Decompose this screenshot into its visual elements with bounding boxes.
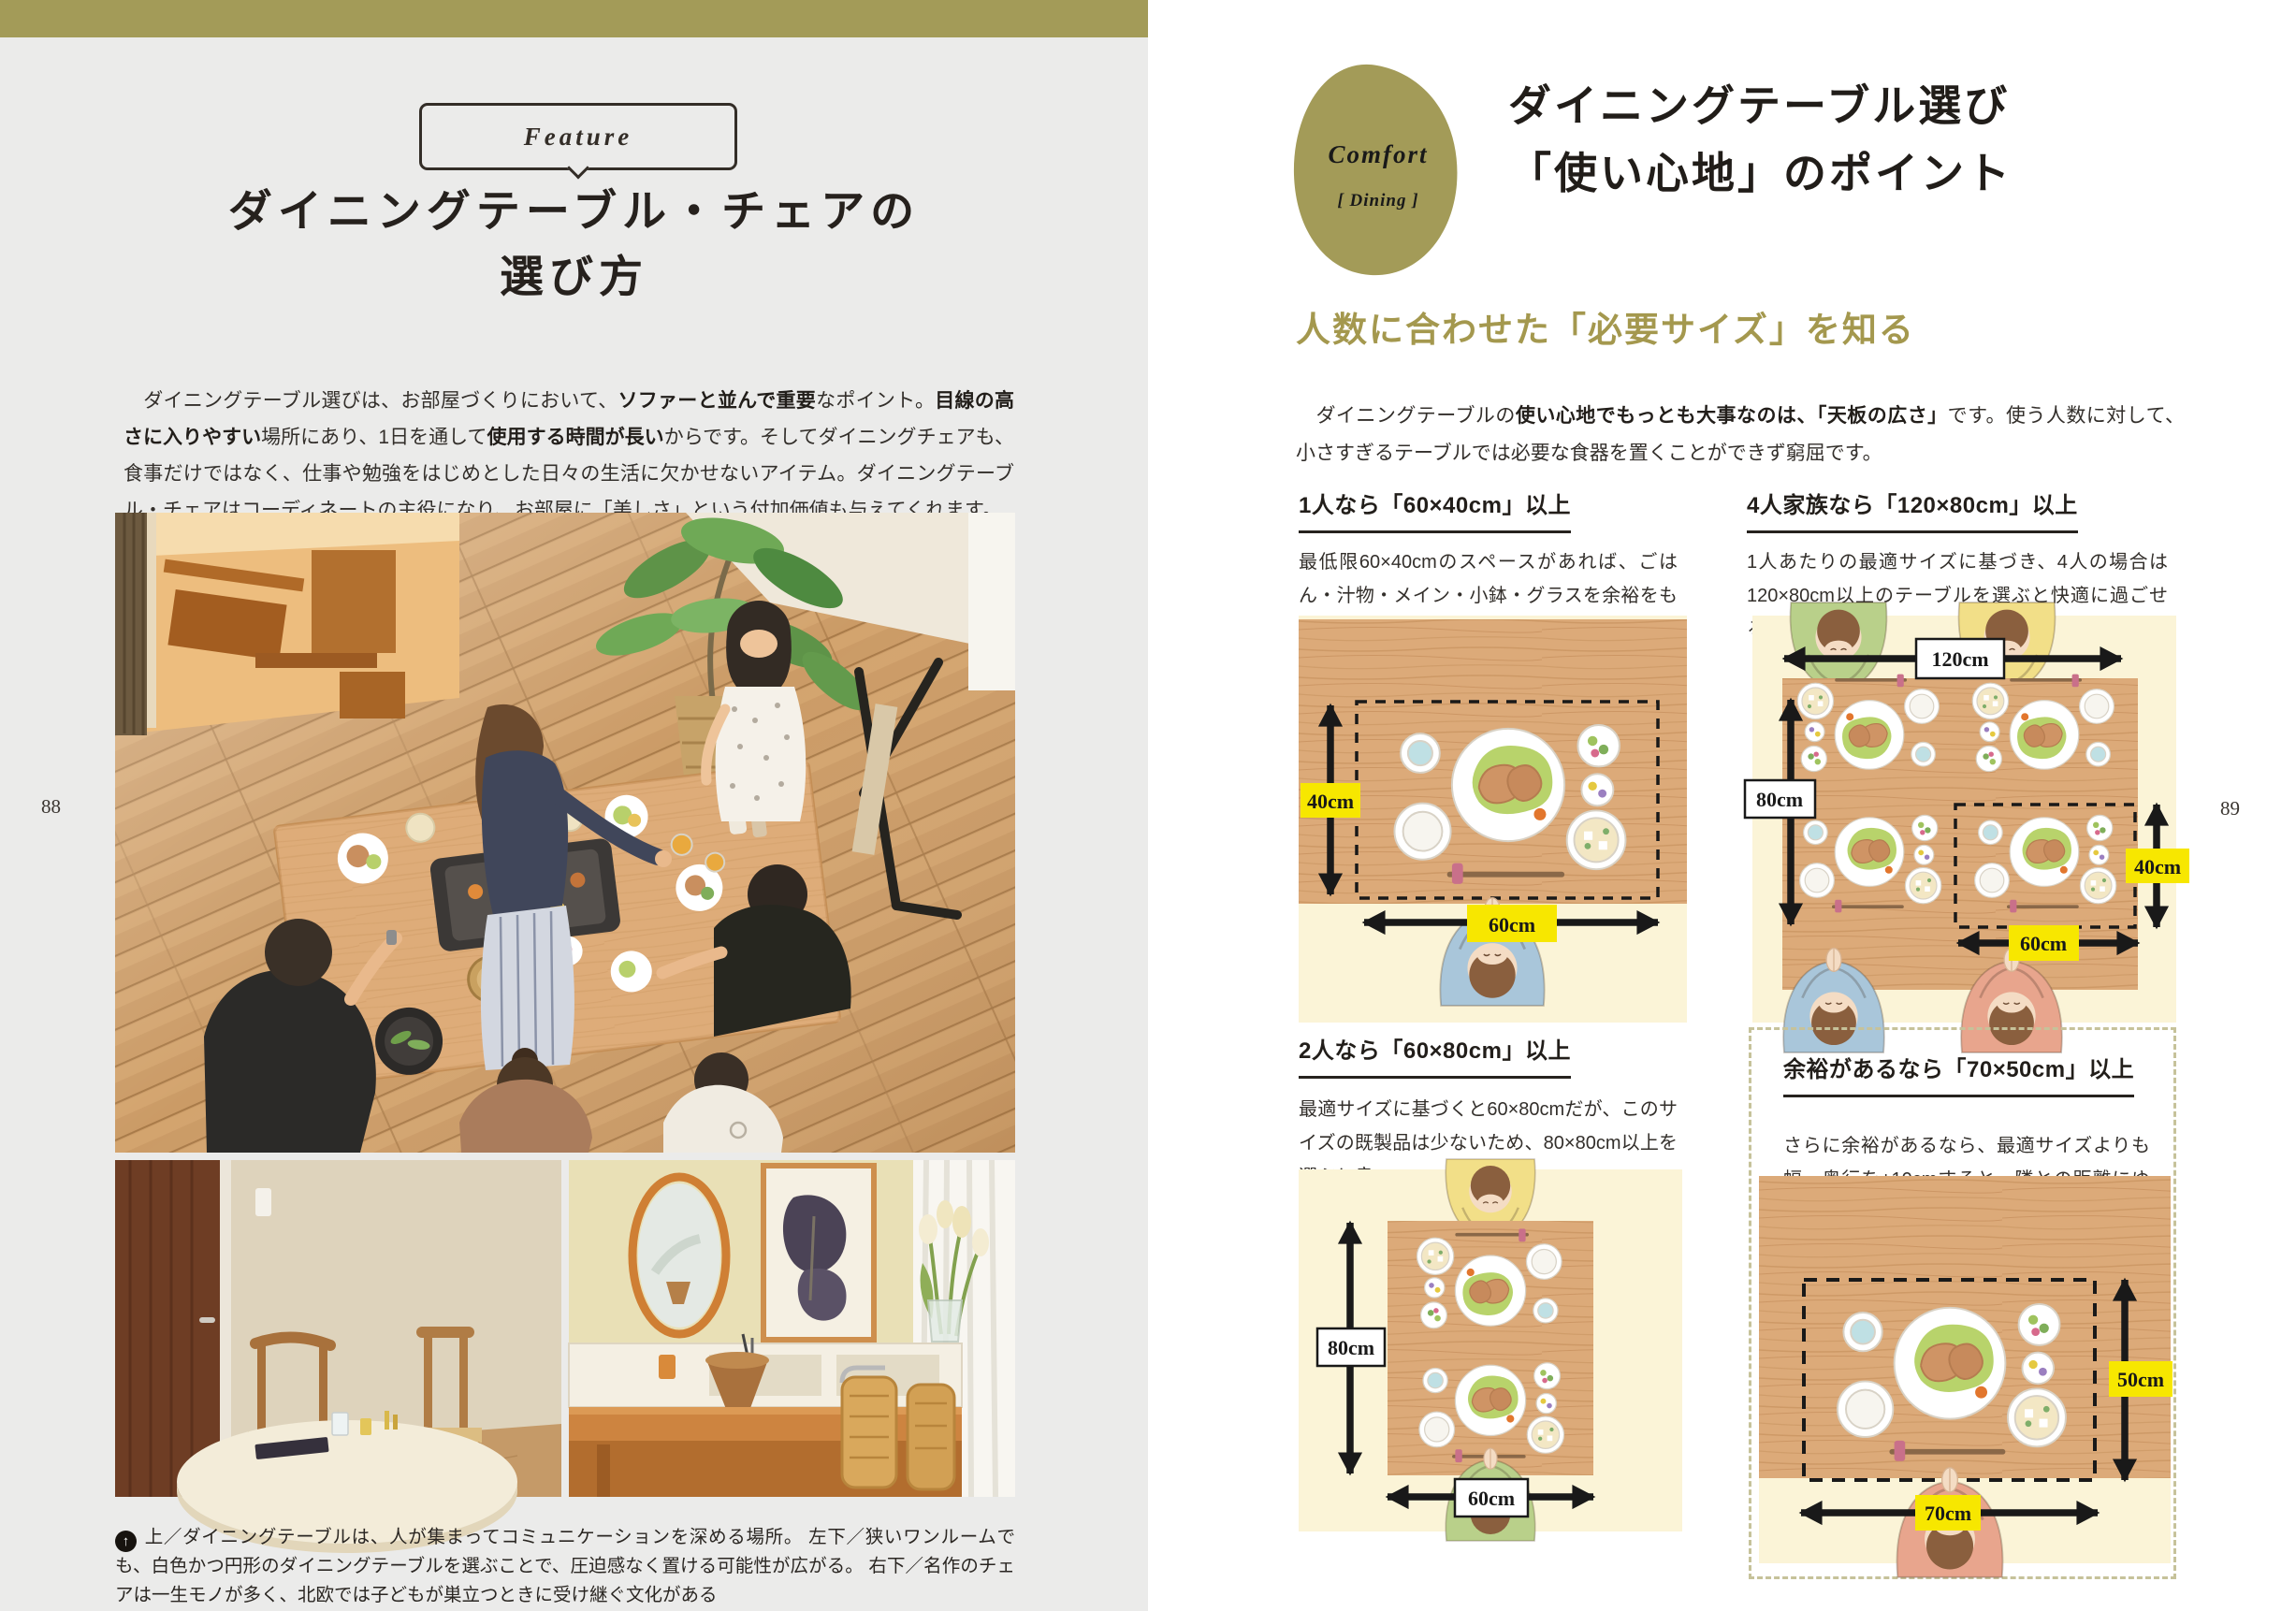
- width-label: 60cm: [1468, 1487, 1515, 1510]
- photo-caption: ↑上／ダイニングテーブルは、人が集まってコミュニケーションを深める場所。 左下／…: [115, 1523, 1015, 1610]
- left-intro-paragraph: ダイニングテーブル選びは、お部屋づくりにおいて、ソファーと並んで重要なポイント。…: [124, 383, 1014, 529]
- feature-badge: Feature: [419, 103, 737, 170]
- caption-arrow-icon: ↑: [115, 1531, 137, 1552]
- right-intro-paragraph: ダイニングテーブルの使い心地でもっとも大事なのは、「天板の広さ」です。使う人数に…: [1296, 398, 2185, 472]
- badge-subtitle: [ Dining ]: [1337, 191, 1418, 210]
- section4-box: 余裕があるなら「70×50cm」以上 さらに余裕があるなら、最適サイズよりも幅・…: [1749, 1027, 2176, 1579]
- sideboard: [569, 1343, 962, 1407]
- width-label: 60cm: [2020, 932, 2067, 955]
- photo-designer-chairs: [569, 1160, 1015, 1497]
- feature-badge-label: Feature: [524, 123, 633, 152]
- depth-label: 40cm: [2134, 855, 2181, 878]
- lead-heading: 人数に合わせた「必要サイズ」を知る: [1296, 301, 2213, 352]
- comfort-badge-blob: Comfort [ Dining ]: [1288, 58, 1472, 249]
- left-title-line1: ダイニングテーブル・チェアの: [0, 180, 1148, 245]
- diagram-2person-60x80: 80cm 60cm: [1299, 1169, 1682, 1534]
- door: [115, 1160, 220, 1497]
- section1-heading: 1人なら「60×40cm」以上: [1299, 486, 1571, 533]
- page-right: Comfort [ Dining ] ダイニングテーブル選び 「使い心地」のポイ…: [1148, 0, 2296, 1611]
- right-title-line1: ダイニングテーブル選び: [1508, 73, 2107, 140]
- depth-label: 40cm: [1307, 790, 1354, 813]
- depth-label: 80cm: [1328, 1336, 1374, 1359]
- table-width-label: 120cm: [1931, 647, 1988, 671]
- diagram-4person-120x80: 120cm 80cm 40cm 60cm: [1752, 616, 2176, 1037]
- diagram-roomy-70x50: 50cm 70cm: [1759, 1176, 2171, 1563]
- section4-heading: 余裕があるなら「70×50cm」以上: [1783, 1051, 2134, 1097]
- page-number-left: 88: [41, 795, 61, 819]
- page-left: Feature ダイニングテーブル・チェアの 選び方 ダイニングテーブル選びは、…: [0, 0, 1148, 1611]
- mirror: [632, 1177, 726, 1334]
- section2-heading: 4人家族なら「120×80cm」以上: [1747, 486, 2078, 533]
- wall-art: [763, 1166, 874, 1340]
- terrace-background: [115, 513, 459, 735]
- top-accent-bar: [0, 0, 1148, 37]
- left-page-title: ダイニングテーブル・チェアの 選び方: [0, 180, 1148, 311]
- photo-main-dining-scene: [115, 513, 1015, 1153]
- left-title-line2: 選び方: [0, 245, 1148, 311]
- right-page-title: ダイニングテーブル選び 「使い心地」のポイント: [1508, 73, 2107, 208]
- width-label: 60cm: [1489, 913, 1535, 936]
- diagram-1person-60x40: 40cm 60cm: [1299, 616, 1687, 1023]
- width-label: 70cm: [1925, 1502, 1971, 1525]
- light-switch: [255, 1188, 271, 1216]
- badge-title: Comfort: [1328, 140, 1428, 168]
- table-depth-label: 80cm: [1756, 788, 1803, 811]
- caption-text: 上／ダイニングテーブルは、人が集まってコミュニケーションを深める場所。 左下／狭…: [115, 1527, 1015, 1605]
- depth-label: 50cm: [2117, 1368, 2164, 1391]
- page-number-right: 89: [2220, 797, 2240, 820]
- wood-table: [569, 1407, 962, 1497]
- right-title-line2: 「使い心地」のポイント: [1508, 140, 2107, 208]
- photo-round-table: [115, 1160, 561, 1497]
- section3-heading: 2人なら「60×80cm」以上: [1299, 1032, 1571, 1079]
